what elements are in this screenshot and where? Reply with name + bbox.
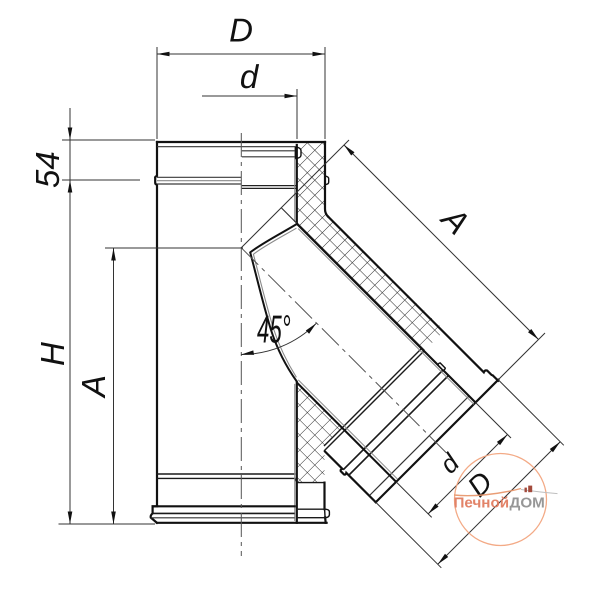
svg-text:A: A bbox=[75, 375, 112, 399]
svg-text:Печной: Печной bbox=[454, 495, 510, 512]
svg-text:45°: 45° bbox=[257, 307, 291, 351]
svg-text:54: 54 bbox=[29, 151, 66, 188]
svg-text:d: d bbox=[240, 58, 260, 95]
svg-text:H: H bbox=[34, 342, 71, 366]
svg-text:ДОМ: ДОМ bbox=[510, 495, 545, 512]
svg-text:D: D bbox=[229, 11, 253, 48]
